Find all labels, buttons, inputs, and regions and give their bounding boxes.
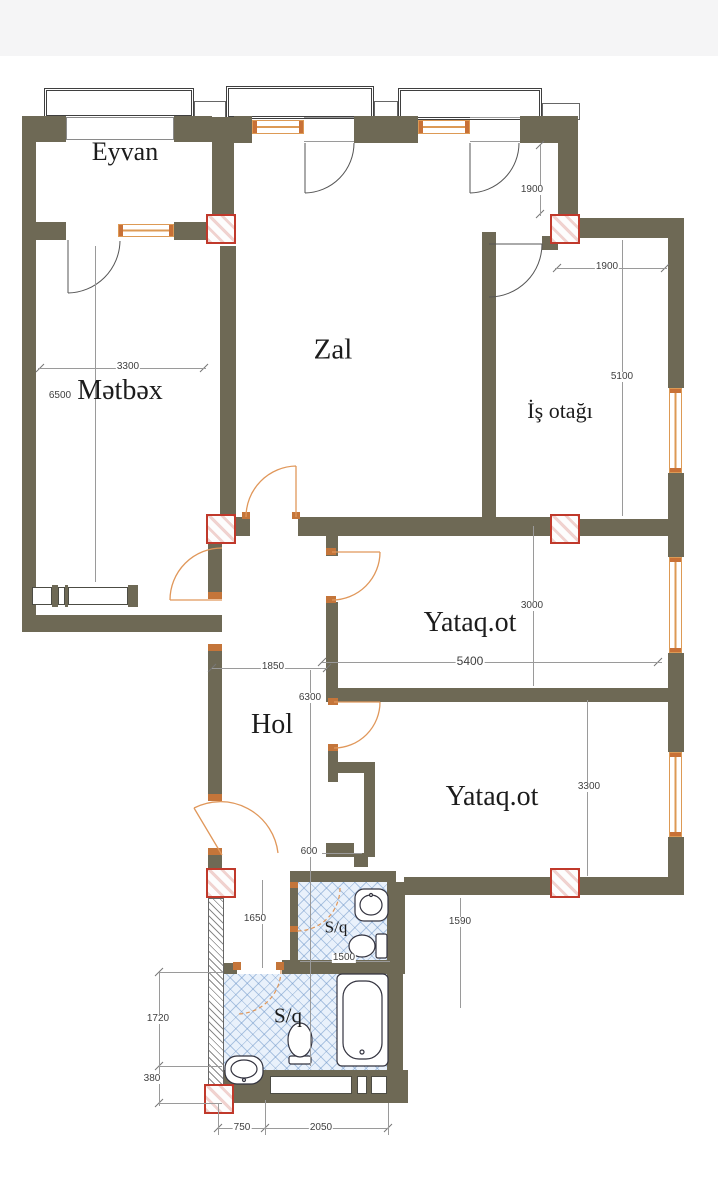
- dim-line: [262, 880, 263, 968]
- dim-line: [159, 972, 222, 973]
- door-arc: [334, 702, 380, 748]
- door-arc: [194, 802, 278, 855]
- room-label-zal: Zal: [314, 336, 353, 365]
- dim-label: 600: [300, 847, 319, 857]
- door-arc: [305, 143, 354, 193]
- dim-line: [265, 1100, 266, 1135]
- dim-label: 380: [143, 1074, 162, 1084]
- room-label-metbex: Mətbəx: [77, 377, 163, 405]
- room-label-eyvan: Eyvan: [92, 139, 158, 165]
- dim-label: 1720: [146, 1014, 170, 1024]
- dim-label: 1590: [448, 917, 472, 927]
- door-arc: [332, 552, 380, 600]
- dim-label: 1900: [520, 185, 544, 195]
- room-label-sq1: S/q: [325, 919, 348, 936]
- dim-line: [322, 662, 662, 663]
- dim-line: [322, 853, 362, 854]
- dim-line: [310, 670, 311, 1066]
- toilet-icon: [288, 1023, 312, 1064]
- dim-line: [388, 1103, 389, 1135]
- dim-line: [460, 898, 461, 1008]
- dim-label: 1900: [595, 262, 619, 272]
- room-label-yataq2: Yataq.ot: [446, 783, 539, 811]
- door-arc: [246, 466, 296, 517]
- dim-label: 6500: [48, 391, 72, 401]
- room-label-hol: Hol: [251, 711, 293, 739]
- door-arc: [170, 548, 222, 600]
- sink-icon: [355, 889, 388, 921]
- dim-label: 3000: [520, 601, 544, 611]
- door-arc: [470, 143, 519, 193]
- plan-overlay: [0, 0, 718, 1200]
- dim-label: 750: [233, 1123, 252, 1133]
- dim-label: 3300: [116, 362, 140, 372]
- dim-label: 3300: [577, 782, 601, 792]
- room-label-sq2: S/q: [274, 1006, 302, 1027]
- dim-label: 6300: [298, 693, 322, 703]
- floor-plan: Eyvan Zal Mətbəx İş otağı Yataq.ot Hol Y…: [0, 0, 718, 1200]
- dim-label: 5100: [610, 372, 634, 382]
- dim-label: 5400: [456, 655, 485, 667]
- dim-label: 1650: [243, 914, 267, 924]
- dim-line: [95, 246, 96, 582]
- bathtub-icon: [337, 974, 388, 1066]
- door-arcs: [68, 143, 542, 1014]
- dim-label: 1850: [261, 662, 285, 672]
- room-label-yataq1: Yataq.ot: [424, 609, 517, 637]
- dim-line: [159, 1066, 222, 1067]
- dim-label: 1500: [332, 953, 356, 963]
- dim-label: 2050: [309, 1123, 333, 1133]
- door-arc: [489, 244, 542, 297]
- sink-icon: [225, 1056, 263, 1084]
- room-label-is-otagi: İş otağı: [527, 400, 592, 422]
- dim-line: [540, 145, 541, 216]
- door-arc: [68, 240, 120, 293]
- dim-line: [159, 1103, 222, 1104]
- dim-line: [218, 1103, 219, 1135]
- dim-line: [159, 972, 160, 1106]
